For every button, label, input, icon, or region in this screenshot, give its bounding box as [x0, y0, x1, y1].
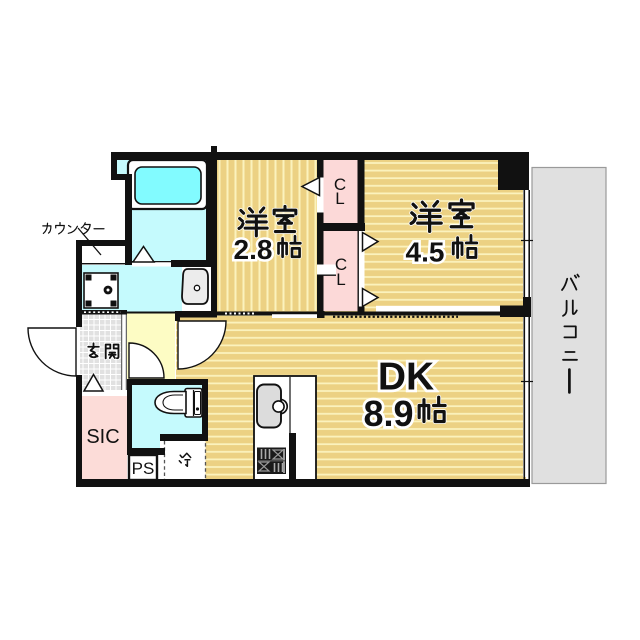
- svg-text:PS: PS: [132, 459, 155, 478]
- svg-text:L: L: [336, 270, 345, 289]
- svg-text:L: L: [335, 189, 344, 208]
- svg-text:SIC: SIC: [86, 426, 119, 448]
- svg-text:4.5: 4.5: [406, 237, 445, 268]
- svg-text:2.8: 2.8: [234, 234, 273, 265]
- svg-text:8.9: 8.9: [363, 393, 413, 434]
